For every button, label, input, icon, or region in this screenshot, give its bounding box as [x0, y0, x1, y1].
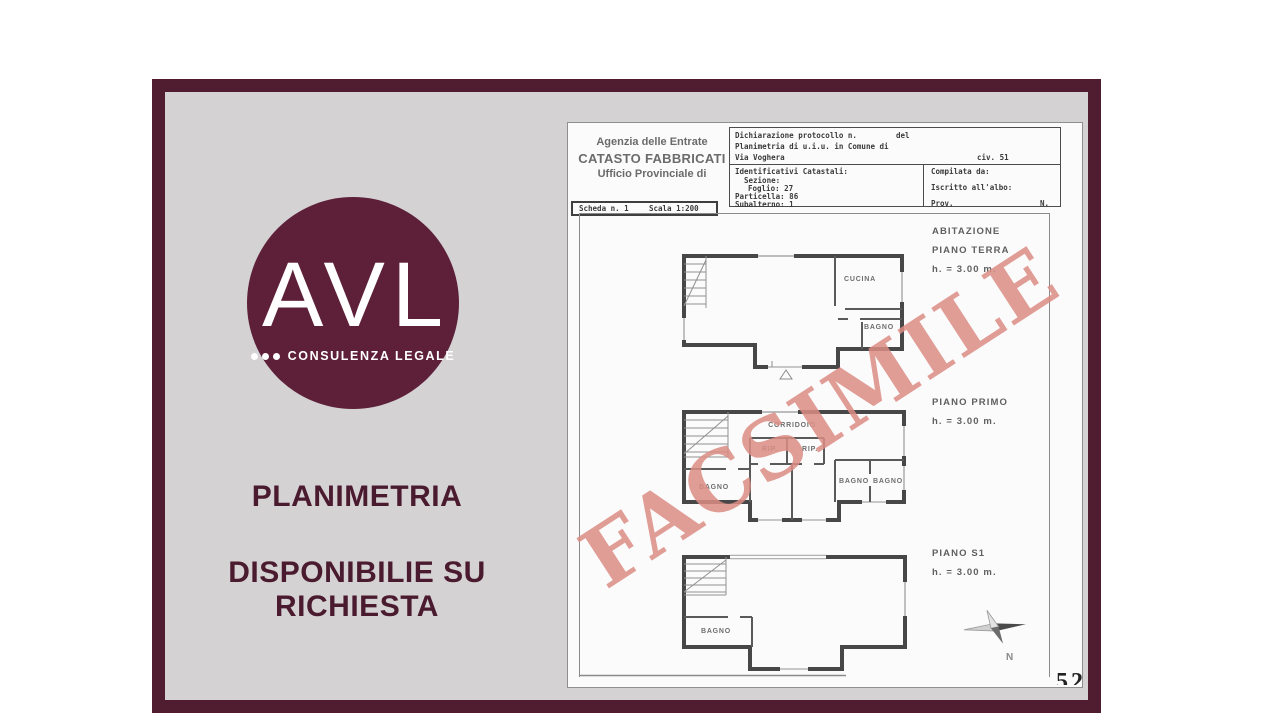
protocol-planimetria: Planimetria di u.i.u. in Comune di	[735, 142, 889, 151]
cadastral-ids-cell: Identificativi Catastali: Sezione: Fogli…	[730, 165, 924, 206]
protocol-del: del	[896, 131, 910, 140]
cadastral-subalterno: Subalterno: 1	[735, 200, 794, 209]
room-label-bagno-primo-2: BAGNO	[868, 478, 908, 485]
compiled-iscritto: Iscritto all'albo:	[931, 183, 1012, 192]
logo-text: AVL	[262, 249, 450, 341]
compiled-compilata: Compilata da:	[931, 167, 990, 176]
protocol-declaration: Dichiarazione protocollo n.	[735, 131, 857, 140]
room-label-bagno-s1: BAGNO	[696, 628, 736, 635]
headline-planimetria: PLANIMETRIA	[172, 480, 542, 514]
headline-disponibile: DISPONIBILIE SU RICHIESTA	[172, 556, 542, 624]
compiled-prov: Prov.	[931, 199, 954, 208]
room-label-cucina: CUCINA	[838, 276, 882, 283]
compass-north-label: N	[1006, 652, 1013, 663]
compass-icon	[964, 600, 1026, 654]
protocol-street: Via Voghera	[735, 153, 785, 162]
floor-s1-height: h. = 3.00 m.	[932, 567, 997, 578]
agency-header: Agenzia delle Entrate CATASTO FABBRICATI…	[576, 135, 728, 182]
avl-logo: AVL CONSULENZA LEGALE	[247, 197, 459, 409]
cadastral-document: Agenzia delle Entrate CATASTO FABBRICATI…	[567, 122, 1083, 688]
cadastral-title: Identificativi Catastali:	[735, 167, 848, 176]
logo-dot-icon	[251, 353, 258, 360]
agency-line3: Ufficio Provinciale di	[576, 167, 728, 182]
agency-line2: CATASTO FABBRICATI	[576, 150, 728, 168]
page-background: AVL CONSULENZA LEGALE PLANIMETRIA DISPON…	[0, 0, 1280, 720]
floor-terra-title: ABITAZIONE	[932, 226, 1000, 237]
agency-line1: Agenzia delle Entrate	[576, 135, 728, 150]
corner-page-marks: 52	[1056, 669, 1092, 685]
protocol-civic: civ. 51	[977, 153, 1009, 162]
scheda-scale: Scala 1:200	[649, 204, 699, 213]
logo-subtitle: CONSULENZA LEGALE	[288, 349, 456, 363]
logo-subtitle-row: CONSULENZA LEGALE	[251, 349, 456, 363]
protocol-row: Dichiarazione protocollo n. del Planimet…	[730, 128, 1060, 165]
floor-primo-height: h. = 3.00 m.	[932, 416, 997, 427]
protocol-table: Dichiarazione protocollo n. del Planimet…	[729, 127, 1061, 207]
compiled-n: N.	[1040, 199, 1049, 208]
logo-dot-icon	[262, 353, 269, 360]
logo-dot-icon	[273, 353, 280, 360]
compiled-cell: Compilata da: Iscritto all'albo: Prov. N…	[924, 165, 1061, 206]
floor-s1-title: PIANO S1	[932, 548, 985, 559]
plan-area: ABITAZIONE PIANO TERRA h. = 3.00 m. PIAN…	[579, 213, 1050, 677]
scheda-number: Scheda n. 1	[579, 204, 629, 213]
floor-primo-title: PIANO PRIMO	[932, 397, 1008, 408]
